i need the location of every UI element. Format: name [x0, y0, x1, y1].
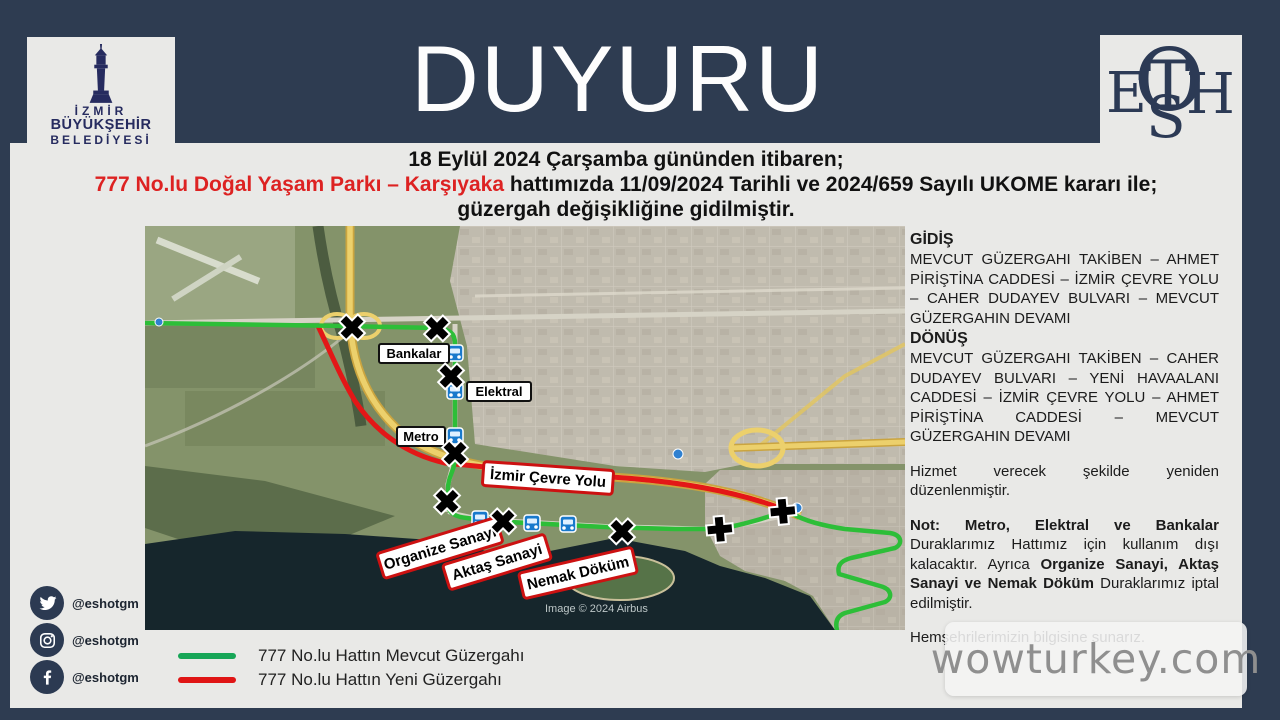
- svg-text:Metro: Metro: [403, 429, 438, 444]
- donus-text: MEVCUT GÜZERGAHI TAKİBEN – CAHER DUDAYEV…: [910, 349, 1219, 447]
- satellite-map: Bankalar Elektral Metro İzmir Çevre Yolu…: [145, 226, 905, 630]
- announcement-line2-rest: hattımızda 11/09/2024 Tarihli ve 2024/65…: [504, 173, 1157, 196]
- note-bold1: Not: Metro, Elektral ve Bankalar: [910, 517, 1219, 534]
- svg-text:✖: ✖: [438, 359, 465, 395]
- svg-text:Elektral: Elektral: [476, 384, 523, 399]
- stop-label-metro: Metro: [397, 427, 445, 446]
- airport-area: [145, 226, 295, 321]
- facebook-handle: @eshotgm: [72, 670, 139, 685]
- route-info-panel: GİDİŞ MEVCUT GÜZERGAHI TAKİBEN – AHMET P…: [910, 229, 1219, 648]
- announcement-line3: güzergah değişikliğine gidilmiştir.: [10, 197, 1242, 222]
- map-copyright: Image © 2024 Airbus: [545, 603, 648, 615]
- route-map[interactable]: Bankalar Elektral Metro İzmir Çevre Yolu…: [145, 226, 905, 630]
- facebook-link[interactable]: @eshotgm: [30, 660, 139, 694]
- eshot-logo: O S E T H: [1100, 35, 1242, 157]
- svg-text:✖: ✖: [434, 484, 461, 520]
- svg-text:✖: ✖: [424, 311, 451, 347]
- route-name-red: 777 No.lu Doğal Yaşam Parkı – Karşıyaka: [95, 173, 504, 196]
- announcement-poster: DUYURU İZMİR BÜYÜKŞEHİR BELEDİYESİ O S E…: [0, 0, 1280, 720]
- eshot-letter-h: H: [1186, 62, 1235, 127]
- svg-text:✖: ✖: [609, 514, 636, 550]
- izmir-logo-line3: BELEDİYESİ: [27, 133, 175, 147]
- izmir-municipality-logo: İZMİR BÜYÜKŞEHİR BELEDİYESİ: [27, 37, 175, 150]
- legend-current-label: 777 No.lu Hattın Mevcut Güzergahı: [258, 646, 524, 666]
- gidis-heading: GİDİŞ: [910, 229, 1219, 250]
- facebook-icon[interactable]: [30, 660, 64, 694]
- twitter-link[interactable]: @eshotgm: [30, 586, 139, 620]
- donus-heading: DÖNÜŞ: [910, 328, 1219, 349]
- service-note: Hizmet verecek şekilde yeniden düzenlenm…: [910, 462, 1219, 501]
- social-links: @eshotgm @eshotgm @eshotgm: [30, 586, 139, 697]
- new-route-swatch: [178, 677, 236, 683]
- izmir-logo-line2: BÜYÜKŞEHİR: [27, 118, 175, 133]
- map-legend: 777 No.lu Hattın Mevcut Güzergahı 777 No…: [178, 644, 524, 692]
- twitter-icon[interactable]: [30, 586, 64, 620]
- eshot-letter-t: T: [1146, 47, 1190, 124]
- legend-current-route: 777 No.lu Hattın Mevcut Güzergahı: [178, 644, 524, 668]
- svg-text:Bankalar: Bankalar: [387, 346, 442, 361]
- instagram-handle: @eshotgm: [72, 633, 139, 648]
- stop-label-elektral: Elektral: [467, 382, 531, 401]
- svg-text:✖: ✖: [442, 436, 469, 472]
- instagram-link[interactable]: @eshotgm: [30, 623, 139, 657]
- legend-new-label: 777 No.lu Hattın Yeni Güzergahı: [258, 670, 502, 690]
- legend-new-route: 777 No.lu Hattın Yeni Güzergahı: [178, 668, 524, 692]
- svg-text:✖: ✖: [339, 310, 366, 346]
- current-route-swatch: [178, 653, 236, 659]
- announcement-line2: 777 No.lu Doğal Yaşam Parkı – Karşıyaka …: [10, 172, 1242, 197]
- note-paragraph: Not: Metro, Elektral ve Bankalar Durakla…: [910, 516, 1219, 614]
- announcement-line1: 18 Eylül 2024 Çarşamba gününden itibaren…: [10, 147, 1242, 172]
- eshot-letter-e: E: [1106, 61, 1147, 126]
- watermark-text: wowturkey.com: [931, 635, 1262, 683]
- twitter-handle: @eshotgm: [72, 596, 139, 611]
- page-title: DUYURU: [398, 30, 838, 129]
- instagram-icon[interactable]: [30, 623, 64, 657]
- gidis-text: MEVCUT GÜZERGAHI TAKİBEN – AHMET PİRİŞTİ…: [910, 250, 1219, 328]
- announcement-text: 18 Eylül 2024 Çarşamba gününden itibaren…: [10, 147, 1242, 222]
- watermark-box: wowturkey.com: [945, 622, 1247, 696]
- svg-text:✖: ✖: [490, 504, 517, 540]
- clock-tower-icon: [79, 43, 123, 105]
